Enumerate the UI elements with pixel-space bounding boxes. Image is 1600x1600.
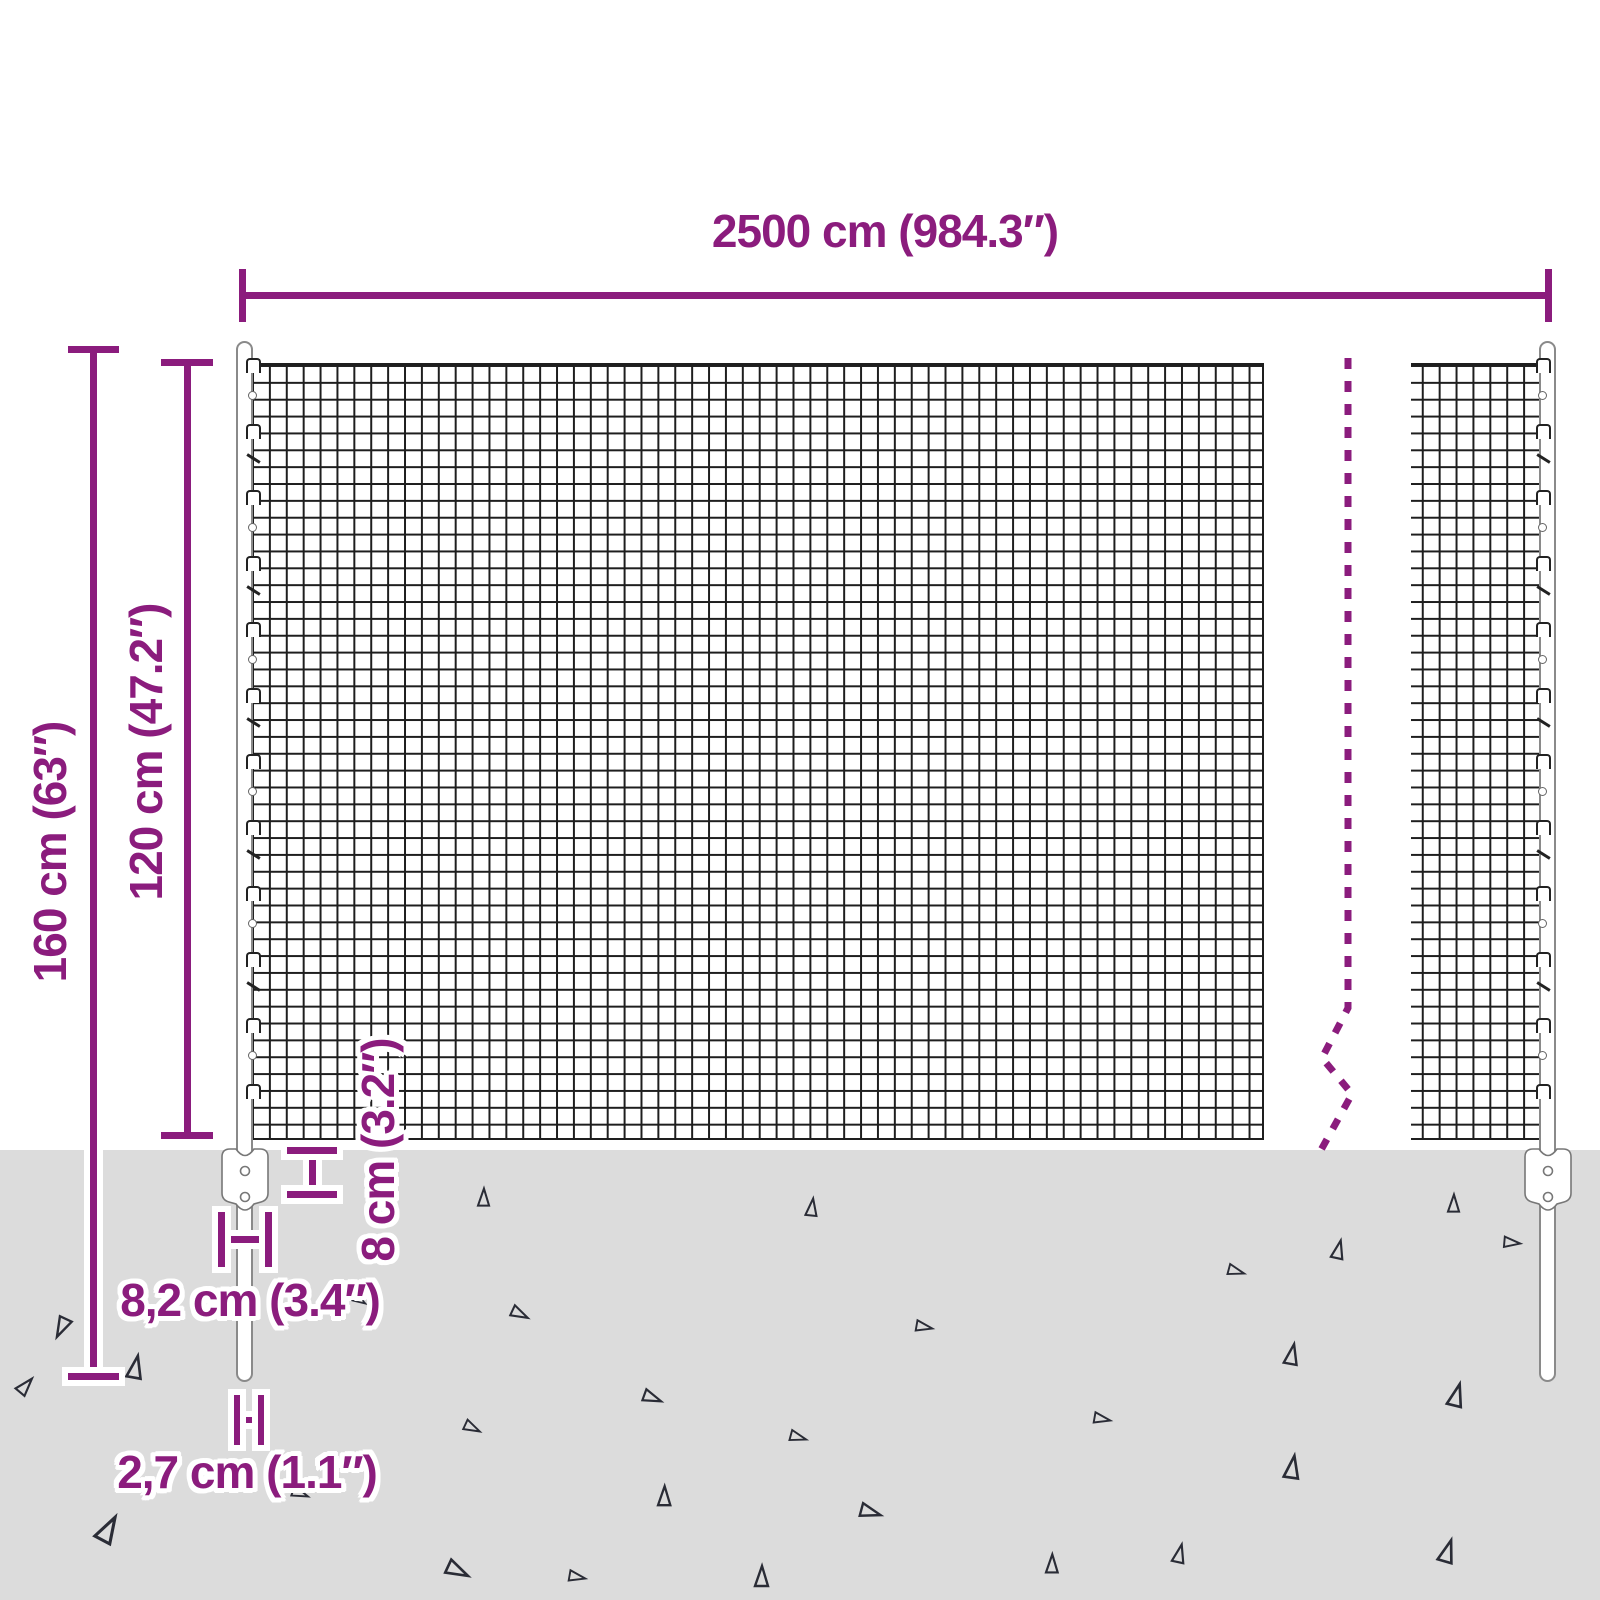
- dim-line-total-height: [90, 349, 97, 1377]
- post-hook: [1536, 886, 1551, 901]
- post-hole: [1538, 391, 1547, 400]
- post-hole: [1538, 655, 1547, 664]
- post-hook: [246, 820, 261, 835]
- post-hook: [246, 1018, 261, 1033]
- post-hook: [246, 754, 261, 769]
- post-hook: [246, 490, 261, 505]
- post-hole: [248, 391, 257, 400]
- post-hook: [1536, 688, 1551, 703]
- label-anchor-depth: 8 cm (3.2″): [355, 1038, 401, 1261]
- dim-line-anchor-depth: [309, 1150, 316, 1197]
- dim-line-anchor-width: [221, 1236, 271, 1243]
- dim-tick: [258, 1395, 264, 1445]
- post-hook: [1536, 1084, 1551, 1099]
- post-hook: [1536, 556, 1551, 571]
- post-hook: [1536, 754, 1551, 769]
- dim-tick: [68, 346, 119, 353]
- mesh-panel-right: [1411, 363, 1542, 1140]
- post-hook: [246, 358, 261, 373]
- post-hole: [1538, 523, 1547, 532]
- ground-anchor-right: [1521, 1145, 1575, 1217]
- post-hook: [246, 424, 261, 439]
- label-mesh-height: 120 cm (47.2″): [123, 604, 169, 901]
- post-hook: [1536, 424, 1551, 439]
- post-hook: [246, 952, 261, 967]
- post-hole: [1538, 787, 1547, 796]
- dim-line-total-width: [242, 292, 1548, 299]
- dim-tick: [161, 359, 213, 366]
- post-hook: [1536, 490, 1551, 505]
- fence-dimension-diagram: 2500 cm (984.3″) 160 cm (63″) 120 cm (47…: [0, 0, 1600, 1600]
- dim-tick: [265, 1212, 272, 1267]
- dim-line-mesh-height: [184, 362, 191, 1138]
- ground-anchor-left: [218, 1145, 272, 1217]
- post-hook: [246, 622, 261, 637]
- post-hole: [1538, 1051, 1547, 1060]
- post-hook: [1536, 952, 1551, 967]
- dim-tick: [287, 1191, 337, 1198]
- mesh-panel-main: [250, 363, 1264, 1140]
- post-hook: [246, 1084, 261, 1099]
- label-total-height: 160 cm (63″): [27, 722, 73, 983]
- post-hook: [1536, 622, 1551, 637]
- dim-tick: [287, 1147, 337, 1154]
- label-anchor-width: 8,2 cm (3.4″): [120, 1277, 380, 1323]
- post-hook: [246, 688, 261, 703]
- dim-tick: [234, 1395, 240, 1445]
- post-hook: [1536, 1018, 1551, 1033]
- post-hook: [1536, 358, 1551, 373]
- dim-tick: [1545, 269, 1552, 322]
- dim-tick: [218, 1212, 225, 1267]
- post-hole: [1538, 919, 1547, 928]
- dim-tick: [161, 1132, 213, 1139]
- dim-tick: [68, 1373, 119, 1380]
- label-post-diameter: 2,7 cm (1.1″): [117, 1449, 377, 1495]
- post-hook: [1536, 820, 1551, 835]
- post-hole: [248, 1051, 257, 1060]
- post-hole: [248, 523, 257, 532]
- post-hook: [246, 556, 261, 571]
- dim-tick: [239, 269, 246, 322]
- dim-line-post-diameter: [238, 1417, 260, 1423]
- post-hole: [248, 787, 257, 796]
- post-hole: [248, 919, 257, 928]
- post-hole: [248, 655, 257, 664]
- post-hook: [246, 886, 261, 901]
- label-total-width: 2500 cm (984.3″): [712, 208, 1058, 254]
